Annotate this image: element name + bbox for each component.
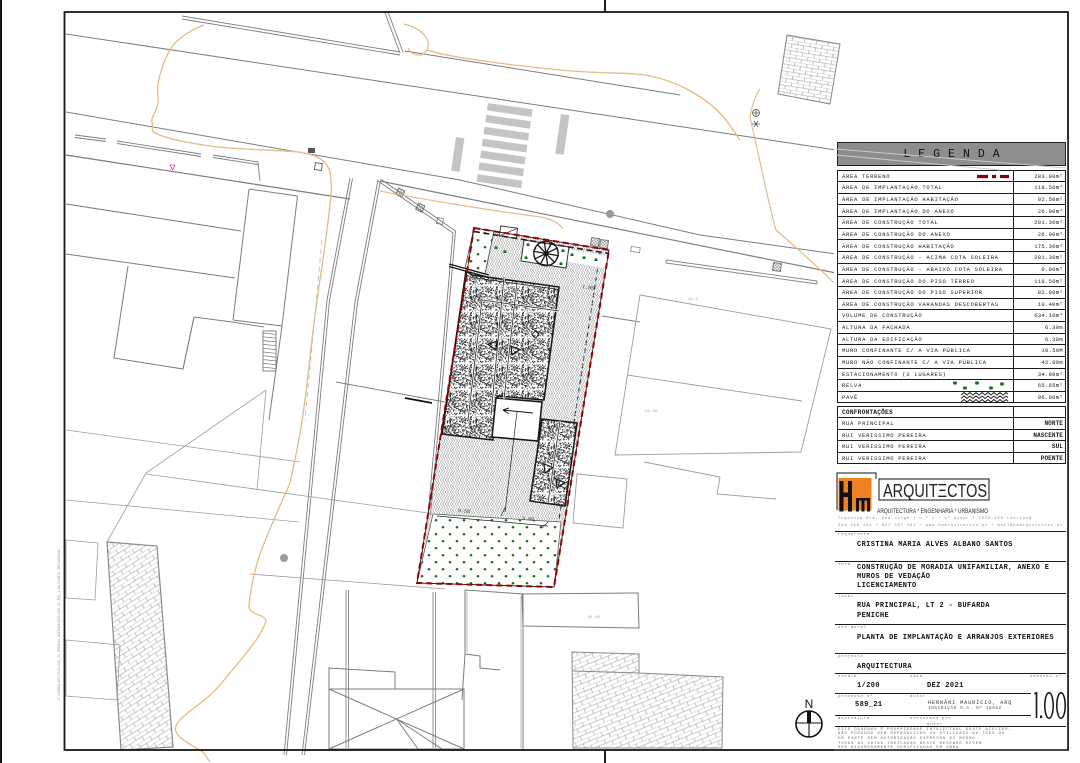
svg-text:3.00: 3.00 [522, 516, 534, 523]
svg-text:41.65: 41.65 [588, 616, 601, 620]
svg-text:C:\TRABALHOS\2021\589_21_MORAD: C:\TRABALHOS\2021\589_21_MORADIA_BUFARDA… [57, 549, 61, 700]
svg-text:8.50: 8.50 [458, 508, 470, 515]
svg-text:42.3: 42.3 [688, 298, 698, 302]
svg-text:42.10: 42.10 [645, 410, 658, 414]
svg-text:ARQUITΞCTOS: ARQUITΞCTOS [883, 480, 987, 501]
svg-text:ARQUITECTURA * ENGENHARIA * UR: ARQUITECTURA * ENGENHARIA * URBANISMO [877, 508, 988, 515]
svg-text:N: N [805, 697, 814, 711]
